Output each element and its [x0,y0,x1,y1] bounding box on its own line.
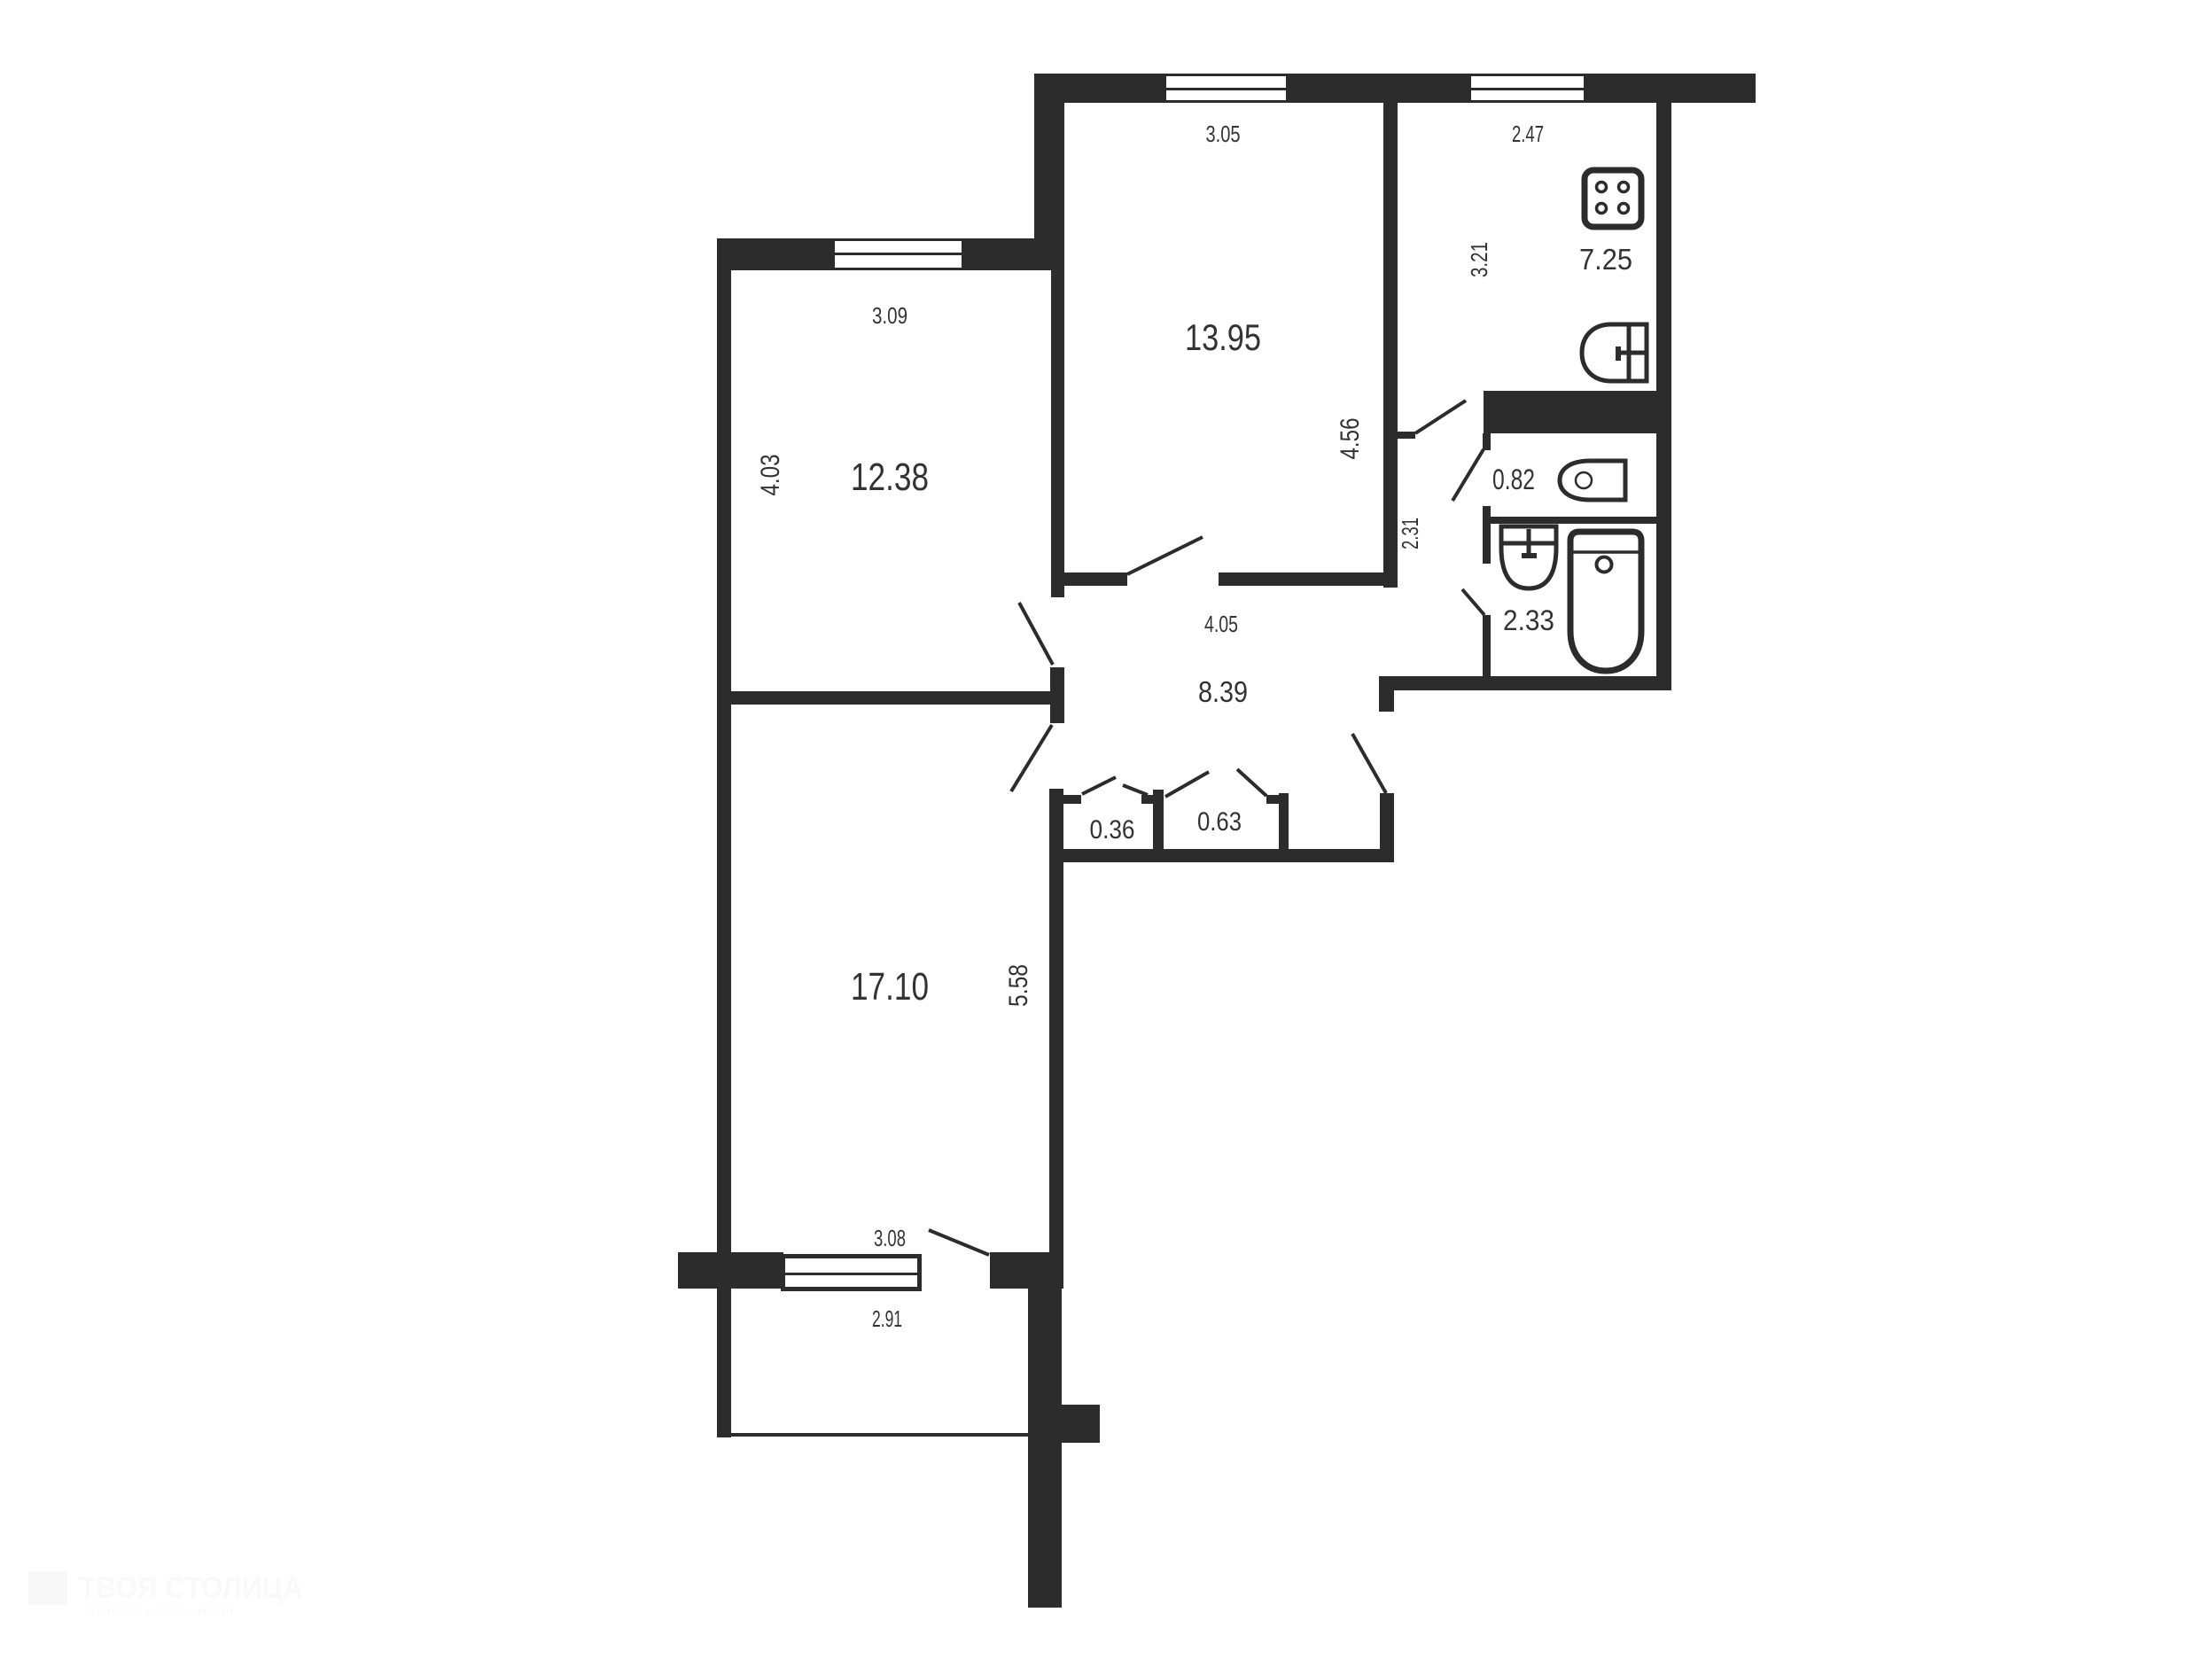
svg-text:2.33: 2.33 [1503,604,1554,636]
svg-text:ТВОЯ СТОЛИЦА: ТВОЯ СТОЛИЦА [79,1571,303,1605]
svg-text:2.31: 2.31 [1397,518,1423,549]
svg-text:3.09: 3.09 [872,302,907,329]
svg-text:7.25: 7.25 [1579,243,1632,276]
svg-text:2.47: 2.47 [1512,121,1544,147]
svg-text:5.58: 5.58 [1004,964,1033,1007]
svg-text:4.03: 4.03 [756,455,785,496]
svg-text:13.95: 13.95 [1185,316,1261,358]
svg-text:8.39: 8.39 [1198,675,1248,708]
svg-text:0.82: 0.82 [1492,463,1535,495]
svg-text:0.63: 0.63 [1197,807,1242,837]
svg-text:12.38: 12.38 [851,456,929,499]
svg-text:3.21: 3.21 [1466,242,1492,277]
svg-text:агентство недвижимости: агентство недвижимости [84,1604,233,1617]
svg-text:3.08: 3.08 [874,1225,906,1251]
svg-text:3.05: 3.05 [1206,121,1241,147]
svg-text:4.05: 4.05 [1204,611,1238,637]
svg-text:0.36: 0.36 [1090,815,1135,845]
svg-text:2.91: 2.91 [872,1305,902,1332]
svg-text:4.56: 4.56 [1336,418,1365,460]
svg-text:17.10: 17.10 [851,965,929,1009]
